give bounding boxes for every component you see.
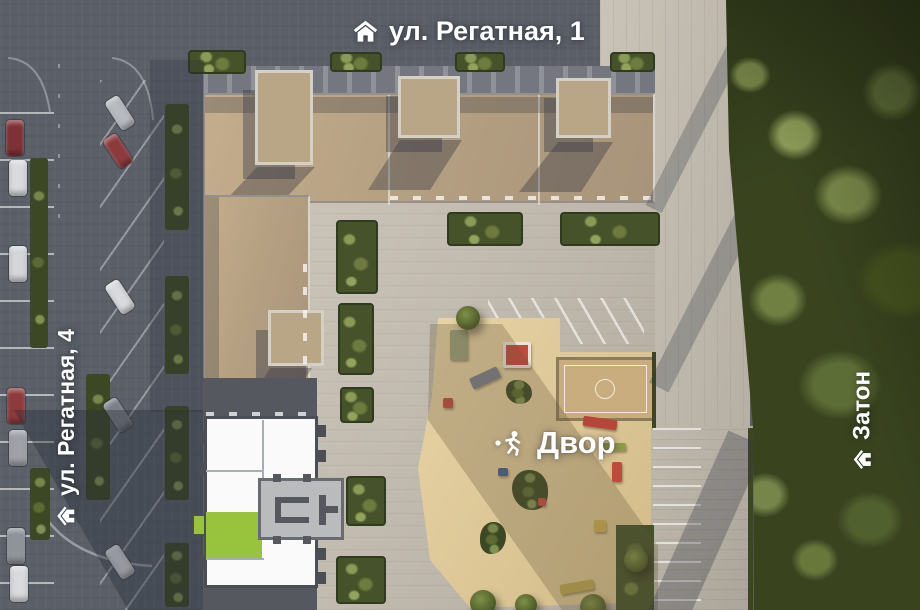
hedge bbox=[30, 158, 48, 348]
playground-equipment bbox=[612, 462, 622, 482]
planter-bed bbox=[447, 212, 523, 246]
window-tab bbox=[316, 572, 326, 584]
planter-bed bbox=[560, 212, 660, 246]
basketball-court bbox=[556, 357, 655, 421]
window-ticks-south bbox=[390, 196, 652, 200]
core-notch bbox=[273, 474, 281, 482]
building-shadow bbox=[150, 60, 204, 412]
core-notch bbox=[303, 536, 311, 544]
core-notch bbox=[303, 474, 311, 482]
interior-wall bbox=[206, 470, 264, 472]
parked-car bbox=[9, 160, 27, 196]
window-tab bbox=[316, 450, 326, 462]
window-tab bbox=[198, 430, 206, 444]
area-label-right-text: Затон bbox=[849, 371, 877, 440]
area-label-right: Затон bbox=[848, 359, 878, 484]
hedge-line bbox=[652, 352, 656, 428]
street-label-left: ул. Регатная, 4 bbox=[51, 313, 81, 543]
court-center-circle bbox=[595, 379, 615, 399]
planter-bed bbox=[336, 556, 386, 604]
roof-bulkhead bbox=[268, 310, 324, 366]
planter-bed bbox=[610, 52, 655, 72]
interior-wall bbox=[206, 558, 264, 560]
planter-bed bbox=[340, 387, 374, 423]
parked-car bbox=[10, 566, 28, 602]
courtyard-label: Двор bbox=[494, 425, 616, 461]
core-wall bbox=[319, 495, 326, 525]
street-label-top-text: ул. Регатная, 1 bbox=[389, 16, 585, 47]
window-tab bbox=[198, 556, 206, 570]
street-label-top: ул. Регатная, 1 bbox=[352, 16, 585, 47]
planter-bed bbox=[338, 303, 374, 375]
house-icon bbox=[352, 18, 379, 45]
selected-unit[interactable] bbox=[206, 512, 262, 558]
parked-car bbox=[6, 120, 24, 156]
planter-bed bbox=[336, 220, 378, 294]
roof-bulkhead bbox=[255, 70, 313, 165]
site-plan: ул. Регатная, 1 ул. Регатная, 4 Затон Дв… bbox=[0, 0, 920, 610]
window-tab bbox=[316, 425, 326, 437]
roof-bulkhead bbox=[556, 78, 611, 138]
parked-car bbox=[7, 528, 25, 564]
planter-bed bbox=[346, 476, 386, 526]
street-label-left-text: ул. Регатная, 4 bbox=[53, 329, 80, 496]
window-tab bbox=[316, 548, 326, 560]
planter-bed bbox=[455, 52, 505, 72]
house-icon bbox=[55, 505, 77, 527]
window-tab bbox=[198, 462, 206, 476]
parked-car bbox=[9, 430, 27, 466]
tree bbox=[515, 594, 537, 610]
planter-bed bbox=[330, 52, 382, 72]
tree bbox=[470, 590, 496, 610]
courtyard-label-text: Двор bbox=[537, 425, 616, 461]
house-icon bbox=[852, 449, 874, 471]
hedge bbox=[30, 468, 50, 540]
core-wall bbox=[275, 497, 309, 523]
playground-figure-icon bbox=[494, 429, 528, 457]
core-wall bbox=[326, 506, 338, 513]
stair-core bbox=[258, 478, 344, 540]
core-notch bbox=[273, 536, 281, 544]
selected-unit-balcony[interactable] bbox=[192, 514, 206, 536]
parked-car bbox=[9, 246, 27, 282]
roof-bulkhead bbox=[398, 76, 460, 138]
